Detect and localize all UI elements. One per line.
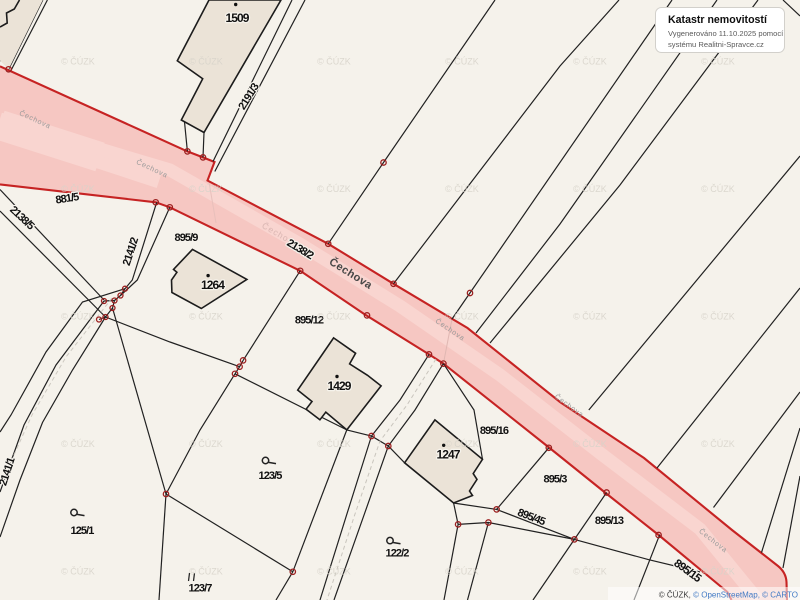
- svg-text:1247: 1247: [436, 448, 460, 462]
- svg-text:895/3: 895/3: [543, 473, 567, 485]
- svg-text:© ČÚZK: © ČÚZK: [573, 439, 607, 449]
- svg-text:© ČÚZK: © ČÚZK: [445, 56, 479, 66]
- svg-text:© ČÚZK: © ČÚZK: [701, 184, 735, 194]
- svg-text:© ČÚZK: © ČÚZK: [61, 311, 95, 321]
- svg-text:© ČÚZK: © ČÚZK: [61, 566, 95, 576]
- svg-text:© ČÚZK: © ČÚZK: [189, 439, 223, 449]
- svg-text:© ČÚZK: © ČÚZK: [317, 566, 351, 576]
- svg-text:895/13: 895/13: [595, 515, 624, 527]
- svg-text:895/9: 895/9: [174, 232, 198, 244]
- svg-text:895/16: 895/16: [480, 425, 509, 437]
- svg-text:© ČÚZK: © ČÚZK: [317, 56, 351, 66]
- svg-text:© ČÚZK: © ČÚZK: [573, 566, 607, 576]
- svg-text:1429: 1429: [327, 379, 351, 393]
- svg-text:© ČÚZK: © ČÚZK: [573, 311, 607, 321]
- svg-text:© ČÚZK: © ČÚZK: [445, 311, 479, 321]
- svg-text:© ČÚZK: © ČÚZK: [61, 56, 95, 66]
- svg-text:123/7: 123/7: [188, 582, 212, 594]
- svg-text:© ČÚZK: © ČÚZK: [701, 439, 735, 449]
- svg-text:Katastr nemovitostí: Katastr nemovitostí: [668, 14, 768, 26]
- svg-text:© ČÚZK: © ČÚZK: [573, 56, 607, 66]
- svg-text:© ČÚZK: © ČÚZK: [189, 184, 223, 194]
- svg-text:© ČÚZK: © ČÚZK: [317, 439, 351, 449]
- svg-text:© ČÚZK: © ČÚZK: [189, 566, 223, 576]
- svg-text:© ČÚZK: © ČÚZK: [701, 311, 735, 321]
- svg-text:© ČÚZK: © ČÚZK: [445, 439, 479, 449]
- svg-text:122/2: 122/2: [385, 547, 409, 559]
- svg-text:© ČÚZK: © ČÚZK: [701, 566, 735, 576]
- svg-text:1509: 1509: [225, 11, 249, 25]
- svg-text:© ČÚZK: © ČÚZK: [317, 184, 351, 194]
- svg-text:© ČÚZK: © ČÚZK: [189, 311, 223, 321]
- svg-text:125/1: 125/1: [70, 525, 94, 537]
- svg-text:© ČÚZK: © ČÚZK: [445, 184, 479, 194]
- svg-text:1264: 1264: [201, 278, 225, 292]
- svg-text:© ČÚZK: © ČÚZK: [445, 566, 479, 576]
- svg-text:© ČÚZK: © ČÚZK: [189, 56, 223, 66]
- svg-text:Vygenerováno 11.10.2025 pomocí: Vygenerováno 11.10.2025 pomocí: [668, 29, 784, 38]
- svg-text:© ČÚZK: © ČÚZK: [701, 56, 735, 66]
- svg-text:systému Realitni-Spravce.cz: systému Realitni-Spravce.cz: [668, 40, 764, 49]
- svg-text:© ČÚZK, © OpenStreetMap, © CAR: © ČÚZK, © OpenStreetMap, © CARTO: [659, 591, 798, 600]
- svg-text:© ČÚZK: © ČÚZK: [61, 184, 95, 194]
- svg-text:123/5: 123/5: [258, 470, 282, 482]
- svg-text:© ČÚZK: © ČÚZK: [61, 439, 95, 449]
- svg-text:© ČÚZK: © ČÚZK: [573, 184, 607, 194]
- svg-text:© ČÚZK: © ČÚZK: [317, 311, 351, 321]
